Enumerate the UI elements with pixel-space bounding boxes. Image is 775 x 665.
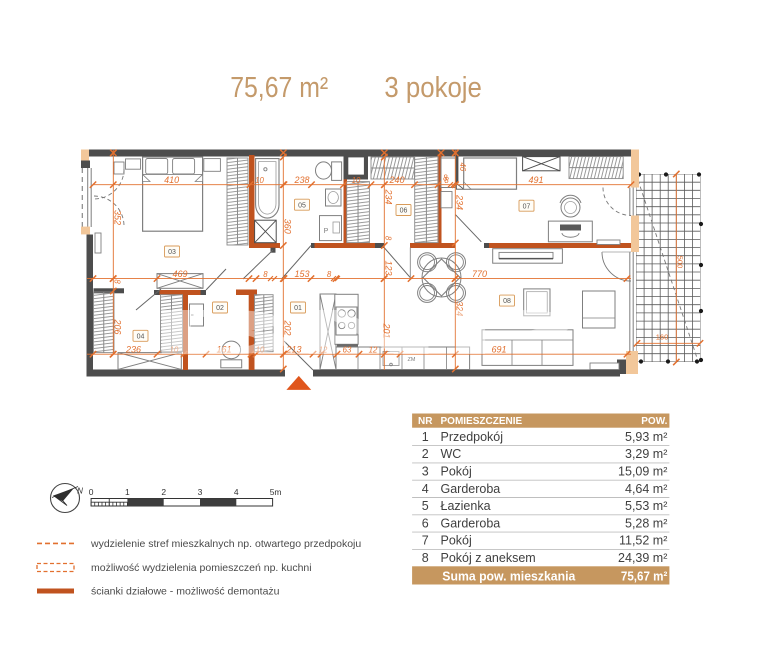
svg-text:5m: 5m bbox=[270, 487, 282, 497]
svg-text:05: 05 bbox=[298, 202, 306, 209]
svg-text:5,53 m²: 5,53 m² bbox=[625, 499, 667, 513]
svg-text:7: 7 bbox=[422, 534, 429, 548]
svg-text:236: 236 bbox=[125, 345, 141, 355]
svg-text:0: 0 bbox=[89, 487, 94, 497]
svg-text:8: 8 bbox=[327, 270, 332, 279]
svg-text:Garderoba: Garderoba bbox=[441, 516, 501, 530]
svg-text:24,39 m²: 24,39 m² bbox=[618, 551, 667, 565]
svg-text:02: 02 bbox=[216, 305, 224, 312]
svg-text:491: 491 bbox=[528, 175, 543, 185]
svg-text:2: 2 bbox=[422, 447, 429, 461]
svg-text:Przedpokój: Przedpokój bbox=[441, 430, 504, 444]
svg-text:352: 352 bbox=[113, 210, 123, 225]
svg-text:Pokój: Pokój bbox=[441, 534, 472, 548]
svg-text:469: 469 bbox=[172, 269, 187, 279]
svg-text:3 pokoje: 3 pokoje bbox=[384, 72, 482, 104]
svg-text:8: 8 bbox=[443, 174, 448, 183]
svg-text:500: 500 bbox=[676, 256, 685, 269]
svg-text:wydzielenie stref mieszkalnyc: wydzielenie stref mieszkalnych np. otwar… bbox=[90, 538, 361, 550]
svg-text:410: 410 bbox=[164, 175, 179, 185]
svg-text:206: 206 bbox=[113, 318, 123, 334]
svg-text:możliwość wydzielenia pomieszc: możliwość wydzielenia pomieszczeń np. ku… bbox=[91, 562, 312, 574]
svg-text:P: P bbox=[324, 228, 329, 235]
svg-text:5,28 m²: 5,28 m² bbox=[625, 516, 667, 530]
svg-text:360: 360 bbox=[283, 219, 293, 234]
svg-text:Pokój z aneksem: Pokój z aneksem bbox=[441, 551, 536, 565]
svg-text:123: 123 bbox=[384, 260, 394, 275]
svg-text:10: 10 bbox=[352, 176, 361, 185]
svg-text:8: 8 bbox=[384, 236, 393, 241]
svg-text:ścianki działowe - możliwość: ścianki działowe - możliwość demontażu bbox=[91, 586, 280, 598]
svg-text:46: 46 bbox=[458, 162, 467, 171]
svg-text:6: 6 bbox=[422, 516, 429, 530]
svg-text:08: 08 bbox=[503, 298, 511, 305]
svg-text:75,67 m²: 75,67 m² bbox=[230, 72, 328, 104]
svg-text:5: 5 bbox=[422, 499, 429, 513]
svg-text:15,09 m²: 15,09 m² bbox=[618, 465, 667, 479]
svg-text:03: 03 bbox=[168, 249, 176, 256]
svg-text:2: 2 bbox=[161, 487, 166, 497]
svg-text:234: 234 bbox=[455, 194, 465, 210]
svg-text:POMIESZCZENIE: POMIESZCZENIE bbox=[441, 416, 523, 427]
svg-text:POW.: POW. bbox=[641, 416, 667, 427]
svg-text:01: 01 bbox=[294, 305, 302, 312]
svg-text:3: 3 bbox=[422, 465, 429, 479]
svg-text:8: 8 bbox=[113, 279, 122, 284]
svg-text:8: 8 bbox=[263, 270, 268, 279]
svg-text:NR: NR bbox=[418, 416, 433, 427]
svg-text:5,93 m²: 5,93 m² bbox=[625, 430, 667, 444]
svg-text:10: 10 bbox=[255, 176, 264, 185]
svg-text:Pokój: Pokój bbox=[441, 465, 472, 479]
svg-text:234: 234 bbox=[384, 188, 394, 204]
svg-text:770: 770 bbox=[472, 269, 487, 279]
svg-text:4: 4 bbox=[234, 487, 239, 497]
svg-text:238: 238 bbox=[293, 175, 309, 185]
svg-text:160: 160 bbox=[656, 333, 669, 342]
svg-text:4: 4 bbox=[422, 482, 429, 496]
svg-text:07: 07 bbox=[523, 203, 531, 210]
svg-text:WC: WC bbox=[441, 447, 462, 461]
svg-text:3: 3 bbox=[198, 487, 203, 497]
svg-text:Łazienka: Łazienka bbox=[441, 499, 491, 513]
svg-text:240: 240 bbox=[388, 175, 404, 185]
svg-text:153: 153 bbox=[294, 269, 309, 279]
svg-text:Garderoba: Garderoba bbox=[441, 482, 501, 496]
svg-text:1: 1 bbox=[422, 430, 429, 444]
svg-text:04: 04 bbox=[137, 333, 145, 340]
svg-text:06: 06 bbox=[400, 208, 408, 215]
svg-text:3,29 m²: 3,29 m² bbox=[625, 447, 667, 461]
svg-text:8: 8 bbox=[422, 551, 429, 565]
svg-text:Suma pow. mieszkania: Suma pow. mieszkania bbox=[442, 569, 576, 584]
svg-text:1: 1 bbox=[125, 487, 130, 497]
svg-text:4,64 m²: 4,64 m² bbox=[625, 482, 667, 496]
svg-text:N: N bbox=[77, 487, 83, 496]
svg-text:75,67 m²: 75,67 m² bbox=[621, 569, 668, 584]
svg-text:11,52 m²: 11,52 m² bbox=[619, 534, 667, 548]
